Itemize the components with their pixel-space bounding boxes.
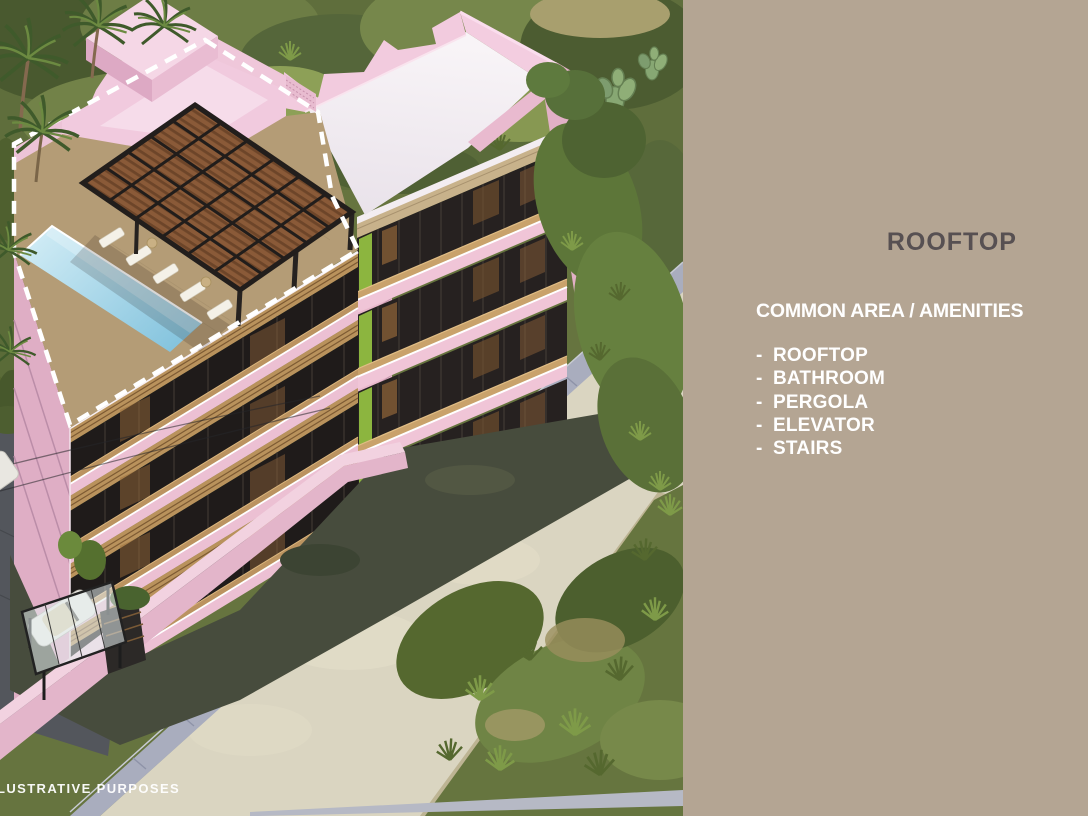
- section-heading: COMMON AREA / AMENITIES: [756, 300, 1023, 323]
- building-rendering: LUSTRATIVE PURPOSES: [0, 0, 683, 816]
- list-item: -ELEVATOR: [756, 414, 885, 437]
- rendering-svg: [0, 0, 683, 816]
- list-item: -BATHROOM: [756, 367, 885, 390]
- side-table: [147, 238, 157, 248]
- amenity-label: ELEVATOR: [773, 415, 875, 436]
- list-item: -ROOFTOP: [756, 344, 885, 367]
- amenity-label: BATHROOM: [773, 368, 885, 389]
- list-item: -STAIRS: [756, 437, 885, 460]
- bullet-dash: -: [756, 414, 773, 437]
- list-item: -PERGOLA: [756, 391, 885, 414]
- side-table: [201, 277, 211, 287]
- amenities-list: -ROOFTOP -BATHROOM -PERGOLA -ELEVATOR -S…: [756, 344, 885, 460]
- amenity-label: STAIRS: [773, 438, 842, 459]
- bullet-dash: -: [756, 391, 773, 414]
- bullet-dash: -: [756, 367, 773, 390]
- slide: LUSTRATIVE PURPOSES ROOFTOP COMMON AREA …: [0, 0, 1088, 816]
- bullet-dash: -: [756, 344, 773, 367]
- bullet-dash: -: [756, 437, 773, 460]
- watermark-disclaimer: LUSTRATIVE PURPOSES: [0, 781, 180, 796]
- amenity-label: PERGOLA: [773, 392, 868, 413]
- page-title: ROOFTOP: [887, 228, 1017, 257]
- info-panel: ROOFTOP COMMON AREA / AMENITIES -ROOFTOP…: [683, 0, 1088, 816]
- amenity-label: ROOFTOP: [773, 345, 868, 366]
